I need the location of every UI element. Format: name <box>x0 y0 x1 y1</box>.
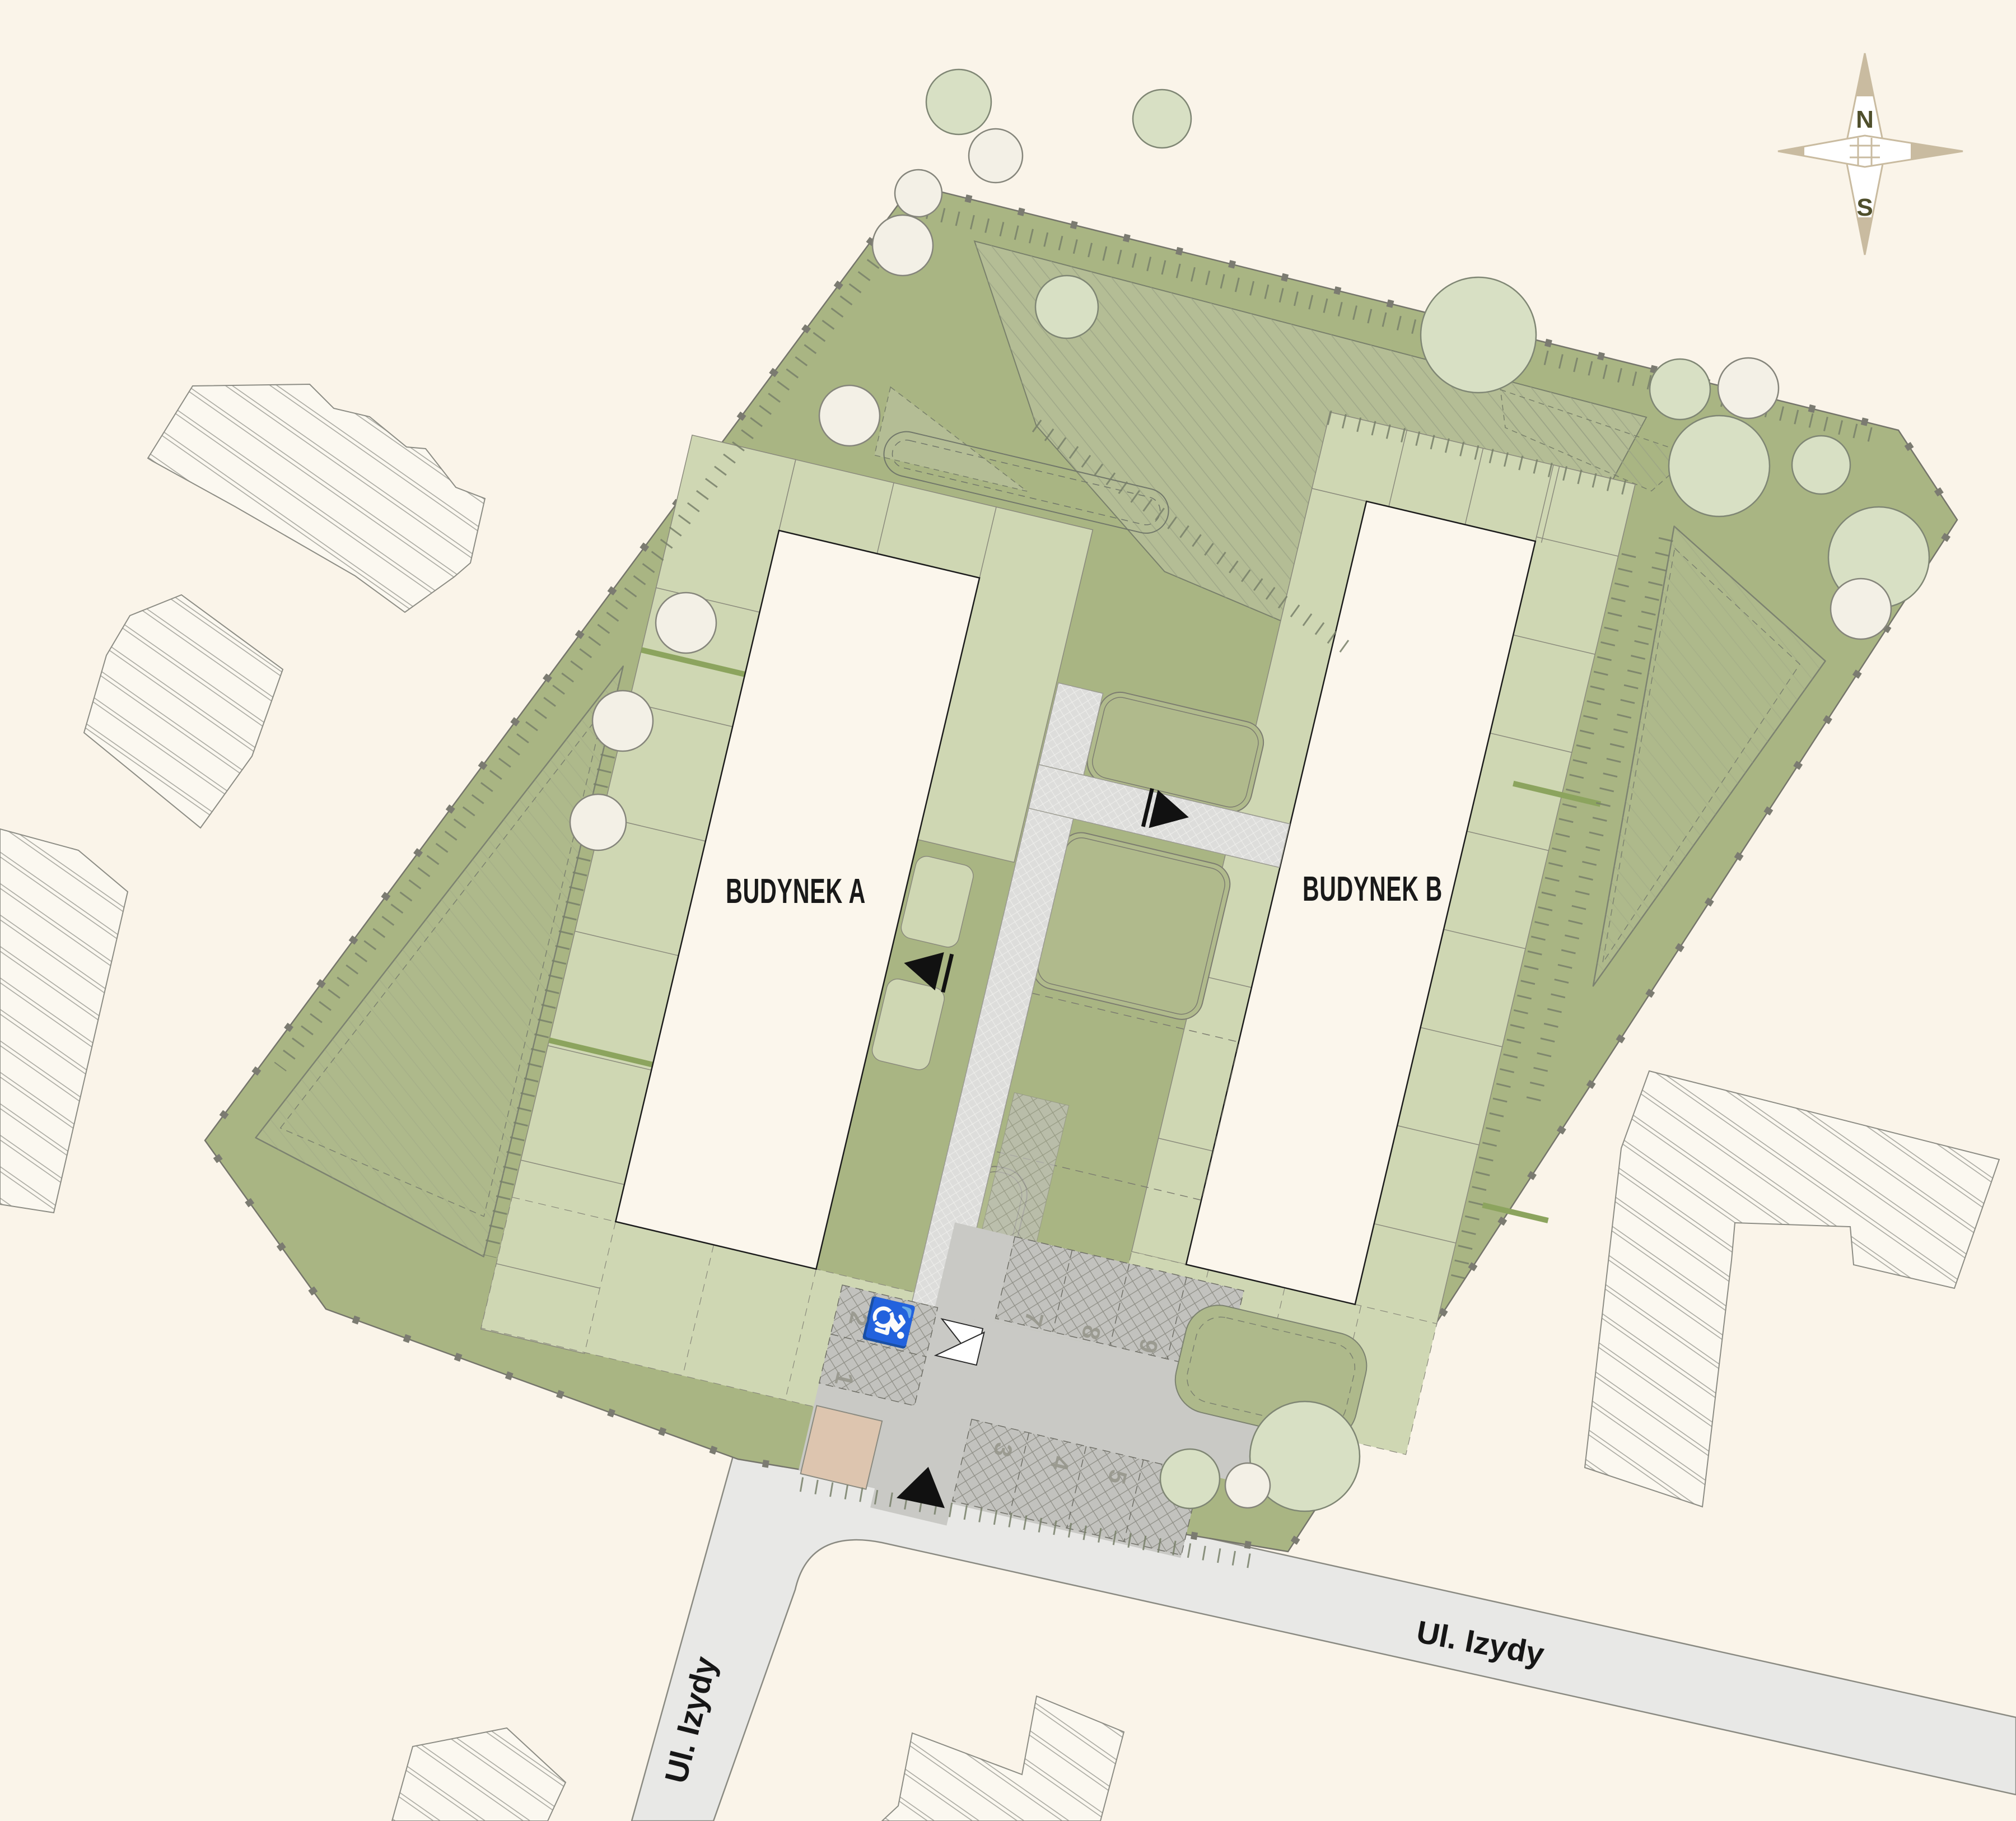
site-plan-map: ♿ 1 2 3 4 5 6 7 8 9 10 <box>0 0 2016 1821</box>
compass-north-label: N <box>1856 106 1874 133</box>
building-a-label[interactable]: BUDYNEK A <box>726 872 866 911</box>
compass-south-label: S <box>1856 194 1873 221</box>
building-b-label[interactable]: BUDYNEK B <box>1303 870 1443 909</box>
